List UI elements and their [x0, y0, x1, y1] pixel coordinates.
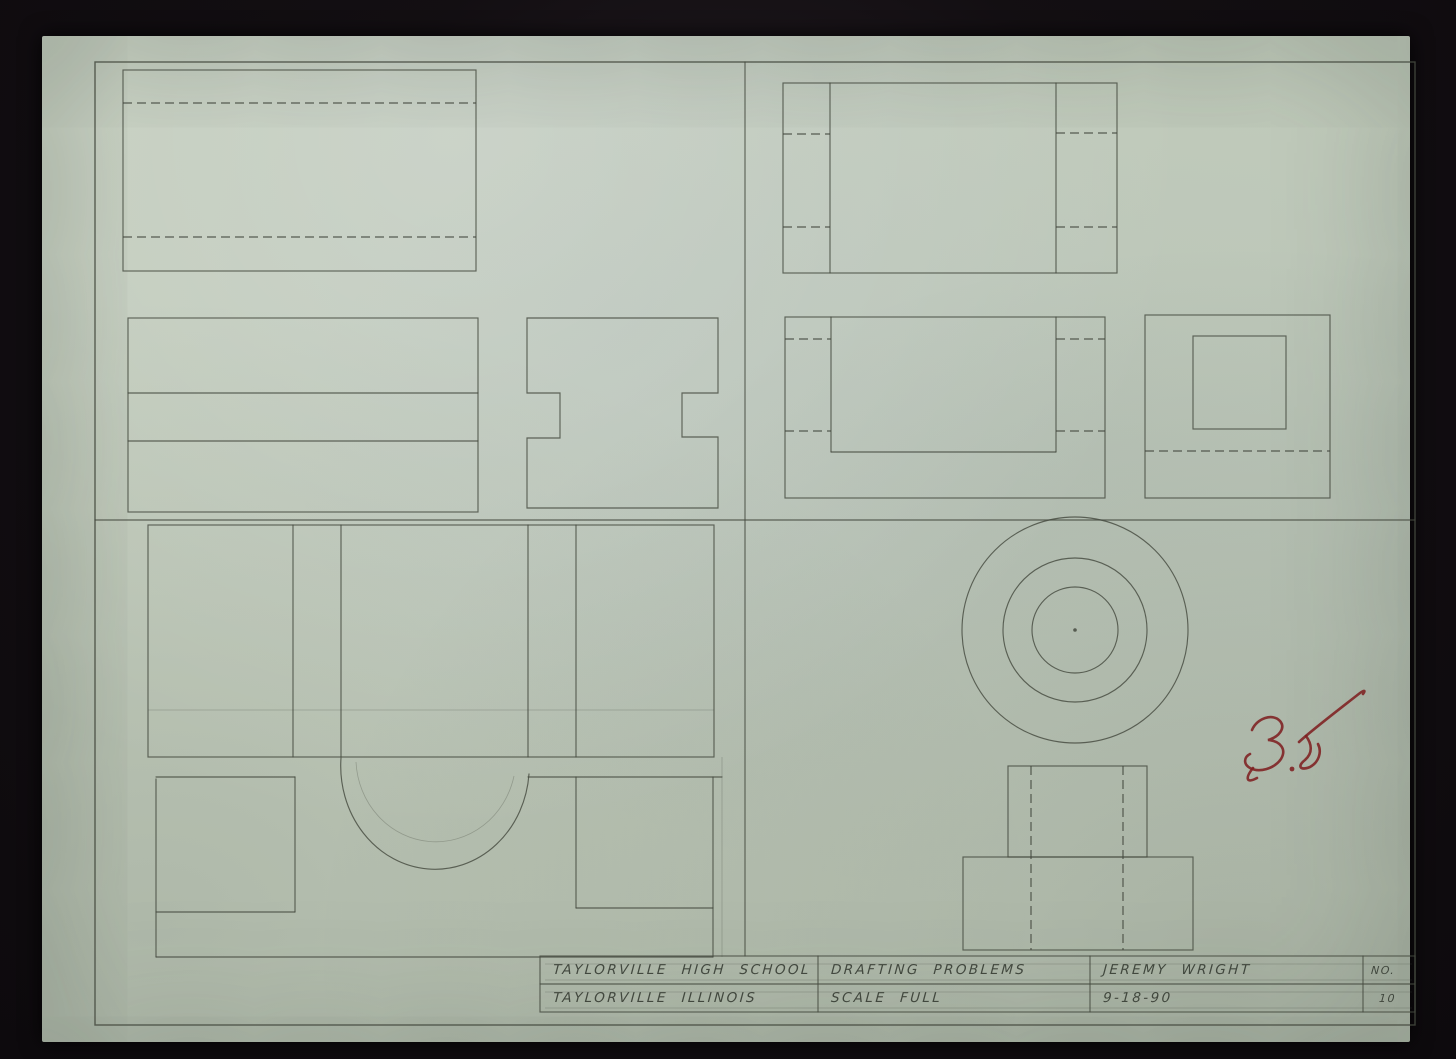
problem-2-front-view — [785, 317, 1105, 498]
problem-3-top-view — [148, 525, 714, 757]
title-block-number-value: 10 — [1362, 984, 1416, 1012]
problem-1-side-view — [527, 318, 718, 508]
title-block-number-label: NO. — [1362, 956, 1416, 984]
problem-3-front-view — [156, 757, 722, 957]
title-block-school-name: TAYLORVILLE HIGH SCHOOL — [539, 956, 819, 984]
photo-background: { "title_block": { "cells": { "school": … — [0, 0, 1456, 1059]
title-block-project-name: DRAFTING PROBLEMS — [817, 956, 1091, 984]
problem-1-top-view — [123, 70, 476, 271]
problem-2-top-view — [783, 83, 1117, 273]
drafting-drawings-layer — [0, 0, 1456, 1059]
title-block-school-location: TAYLORVILLE ILLINOIS — [539, 984, 819, 1012]
title-block-scale: SCALE FULL — [817, 984, 1091, 1012]
title-block: TAYLORVILLE HIGH SCHOOL DRAFTING PROBLEM… — [540, 956, 1415, 1012]
problem-1-front-view — [128, 318, 478, 512]
title-block-date: 9-18-90 — [1089, 984, 1364, 1012]
title-block-author-name: JEREMY WRIGHT — [1089, 956, 1364, 984]
problem-4-front-view — [963, 766, 1193, 950]
problem-4-top-view-circles — [962, 517, 1188, 743]
problem-2-side-view — [1145, 315, 1330, 498]
grade-mark-35 — [1245, 691, 1364, 781]
